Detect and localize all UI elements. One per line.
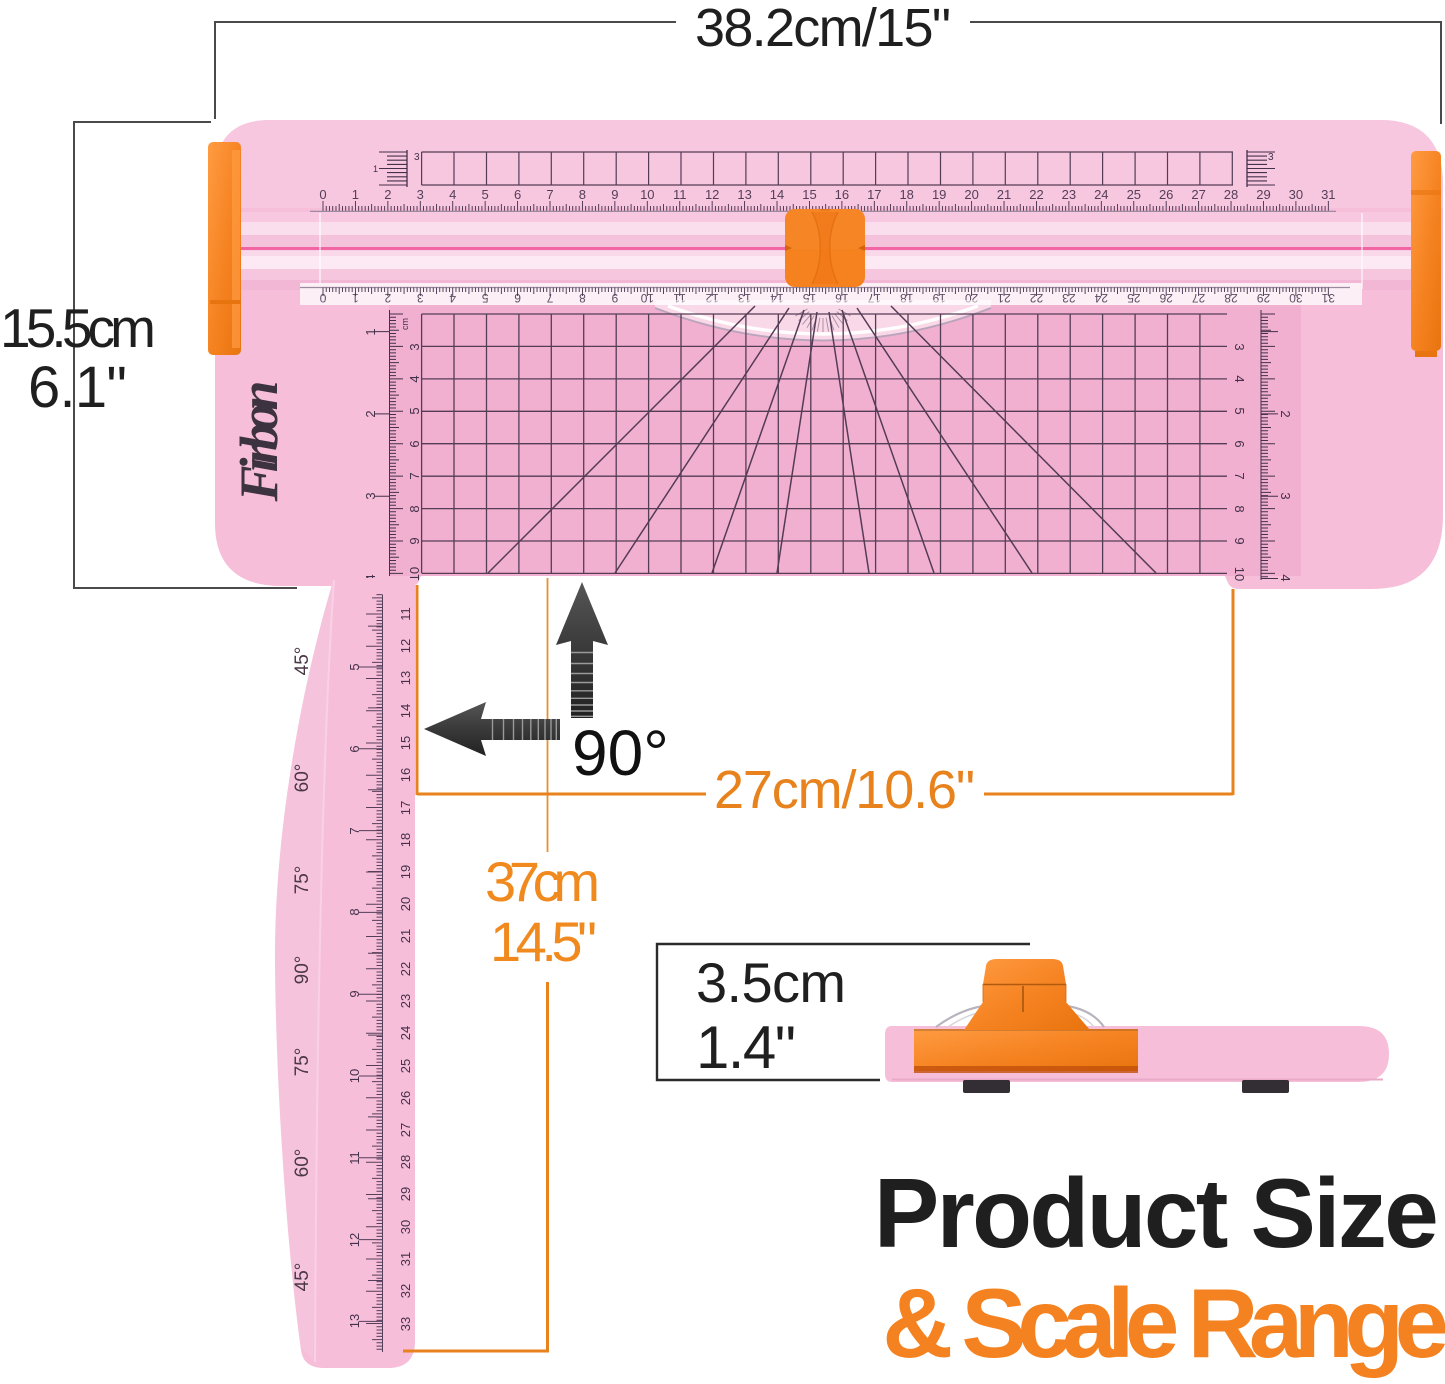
svg-text:1: 1	[352, 187, 359, 202]
svg-text:19: 19	[398, 865, 413, 879]
svg-text:10: 10	[347, 1069, 362, 1083]
svg-text:23: 23	[1062, 291, 1076, 305]
svg-text:7: 7	[407, 472, 422, 479]
svg-text:25: 25	[1127, 291, 1141, 305]
svg-text:38.2cm/15": 38.2cm/15"	[695, 0, 951, 58]
svg-text:3: 3	[417, 291, 424, 305]
svg-text:2: 2	[384, 291, 391, 305]
svg-text:23: 23	[1062, 187, 1076, 202]
svg-text:14: 14	[770, 187, 784, 202]
svg-text:0: 0	[319, 291, 326, 305]
svg-text:45°: 45°	[292, 1263, 313, 1292]
svg-text:27: 27	[398, 1123, 413, 1137]
svg-text:27: 27	[1191, 187, 1205, 202]
svg-text:13: 13	[737, 187, 751, 202]
svg-text:14: 14	[398, 704, 413, 718]
svg-text:12: 12	[705, 187, 719, 202]
svg-text:22: 22	[1029, 187, 1043, 202]
svg-text:15: 15	[398, 736, 413, 750]
svg-text:19: 19	[932, 187, 946, 202]
svg-text:31: 31	[1321, 291, 1335, 305]
svg-text:8: 8	[579, 187, 586, 202]
svg-text:3: 3	[407, 343, 422, 350]
svg-text:7: 7	[1232, 472, 1247, 479]
svg-text:32: 32	[398, 1284, 413, 1298]
svg-text:15: 15	[802, 187, 816, 202]
svg-text:6: 6	[407, 440, 422, 447]
svg-text:3: 3	[1278, 492, 1293, 499]
svg-text:10: 10	[640, 291, 654, 305]
svg-text:8: 8	[347, 908, 362, 915]
svg-text:7: 7	[546, 291, 553, 305]
svg-text:7: 7	[546, 187, 553, 202]
svg-text:1: 1	[363, 328, 378, 335]
svg-text:4: 4	[407, 375, 422, 382]
svg-text:21: 21	[997, 291, 1011, 305]
svg-text:13: 13	[347, 1314, 362, 1328]
svg-text:2: 2	[363, 410, 378, 417]
svg-text:75°: 75°	[292, 866, 313, 895]
svg-text:3: 3	[414, 152, 420, 163]
svg-text:16: 16	[835, 187, 849, 202]
svg-text:18: 18	[899, 187, 913, 202]
svg-text:37cm: 37cm	[485, 850, 600, 913]
svg-text:Firbon: Firbon	[229, 381, 289, 503]
svg-text:9: 9	[611, 291, 618, 305]
svg-text:5: 5	[347, 663, 362, 670]
svg-text:9: 9	[611, 187, 618, 202]
svg-text:25: 25	[398, 1059, 413, 1073]
svg-text:11: 11	[347, 1151, 362, 1165]
svg-text:16: 16	[398, 768, 413, 782]
svg-text:3: 3	[1268, 152, 1274, 163]
svg-text:27cm/10.6": 27cm/10.6"	[714, 760, 975, 820]
svg-text:12: 12	[347, 1233, 362, 1247]
svg-text:21: 21	[997, 187, 1011, 202]
svg-text:5: 5	[407, 407, 422, 414]
svg-text:90°: 90°	[572, 717, 669, 789]
svg-text:30: 30	[1289, 291, 1303, 305]
svg-text:9: 9	[347, 990, 362, 997]
svg-text:10: 10	[640, 187, 654, 202]
svg-text:6: 6	[514, 187, 521, 202]
svg-text:45°: 45°	[292, 647, 313, 676]
svg-text:23: 23	[398, 994, 413, 1008]
svg-text:8: 8	[1232, 505, 1247, 512]
svg-text:0: 0	[319, 187, 326, 202]
svg-text:3: 3	[1232, 343, 1247, 350]
svg-text:26: 26	[1159, 291, 1173, 305]
svg-text:9: 9	[1232, 537, 1247, 544]
svg-text:4: 4	[1232, 375, 1247, 382]
svg-text:8: 8	[579, 291, 586, 305]
svg-text:12: 12	[398, 639, 413, 653]
svg-text:3: 3	[363, 492, 378, 499]
svg-text:5: 5	[481, 187, 488, 202]
svg-text:5: 5	[1232, 407, 1247, 414]
svg-text:7: 7	[347, 827, 362, 834]
svg-text:26: 26	[398, 1091, 413, 1105]
svg-text:cm: cm	[400, 318, 410, 330]
svg-text:6: 6	[1232, 440, 1247, 447]
svg-text:4: 4	[449, 291, 456, 305]
svg-text:27: 27	[1192, 291, 1206, 305]
svg-text:17: 17	[398, 801, 413, 815]
svg-text:31: 31	[1321, 187, 1335, 202]
svg-text:11: 11	[673, 187, 687, 202]
svg-text:6: 6	[514, 291, 521, 305]
svg-text:20: 20	[964, 187, 978, 202]
svg-text:25: 25	[1127, 187, 1141, 202]
svg-text:3.5cm: 3.5cm	[696, 951, 846, 1014]
svg-text:28: 28	[398, 1155, 413, 1169]
svg-text:33: 33	[398, 1317, 413, 1331]
svg-text:Product Size: Product Size	[874, 1158, 1436, 1268]
svg-text:10: 10	[1232, 567, 1247, 581]
svg-text:29: 29	[1256, 187, 1270, 202]
svg-text:13: 13	[398, 671, 413, 685]
svg-text:& Scale Range: & Scale Range	[882, 1268, 1445, 1378]
svg-text:22: 22	[398, 962, 413, 976]
svg-text:4: 4	[1278, 574, 1293, 581]
svg-text:9: 9	[407, 537, 422, 544]
svg-text:5: 5	[481, 291, 488, 305]
svg-text:29: 29	[1257, 291, 1271, 305]
svg-text:60°: 60°	[292, 764, 313, 793]
svg-text:26: 26	[1159, 187, 1173, 202]
svg-text:20: 20	[398, 897, 413, 911]
svg-text:21: 21	[398, 929, 413, 943]
svg-text:11: 11	[398, 607, 413, 621]
svg-text:24: 24	[398, 1026, 413, 1040]
svg-text:24: 24	[1094, 187, 1108, 202]
svg-text:1: 1	[373, 164, 378, 174]
svg-text:6.1": 6.1"	[28, 355, 127, 420]
svg-text:2: 2	[384, 187, 391, 202]
svg-text:22: 22	[1030, 291, 1044, 305]
svg-text:15.5cm: 15.5cm	[0, 297, 156, 359]
svg-text:28: 28	[1224, 187, 1238, 202]
svg-text:14.5": 14.5"	[490, 910, 597, 973]
svg-text:6: 6	[347, 745, 362, 752]
svg-text:60°: 60°	[292, 1149, 313, 1178]
svg-text:30: 30	[398, 1220, 413, 1234]
svg-text:29: 29	[398, 1187, 413, 1201]
svg-text:24: 24	[1094, 291, 1108, 305]
svg-text:1.4": 1.4"	[696, 1014, 796, 1081]
svg-text:1: 1	[352, 291, 359, 305]
svg-text:4: 4	[449, 187, 456, 202]
svg-text:90°: 90°	[292, 956, 313, 985]
svg-text:2: 2	[1278, 410, 1293, 417]
svg-text:17: 17	[867, 187, 881, 202]
svg-text:75°: 75°	[292, 1048, 313, 1077]
svg-text:28: 28	[1224, 291, 1238, 305]
svg-text:3: 3	[417, 187, 424, 202]
svg-text:31: 31	[398, 1252, 413, 1266]
svg-text:30: 30	[1289, 187, 1303, 202]
svg-text:8: 8	[407, 505, 422, 512]
svg-text:18: 18	[398, 833, 413, 847]
